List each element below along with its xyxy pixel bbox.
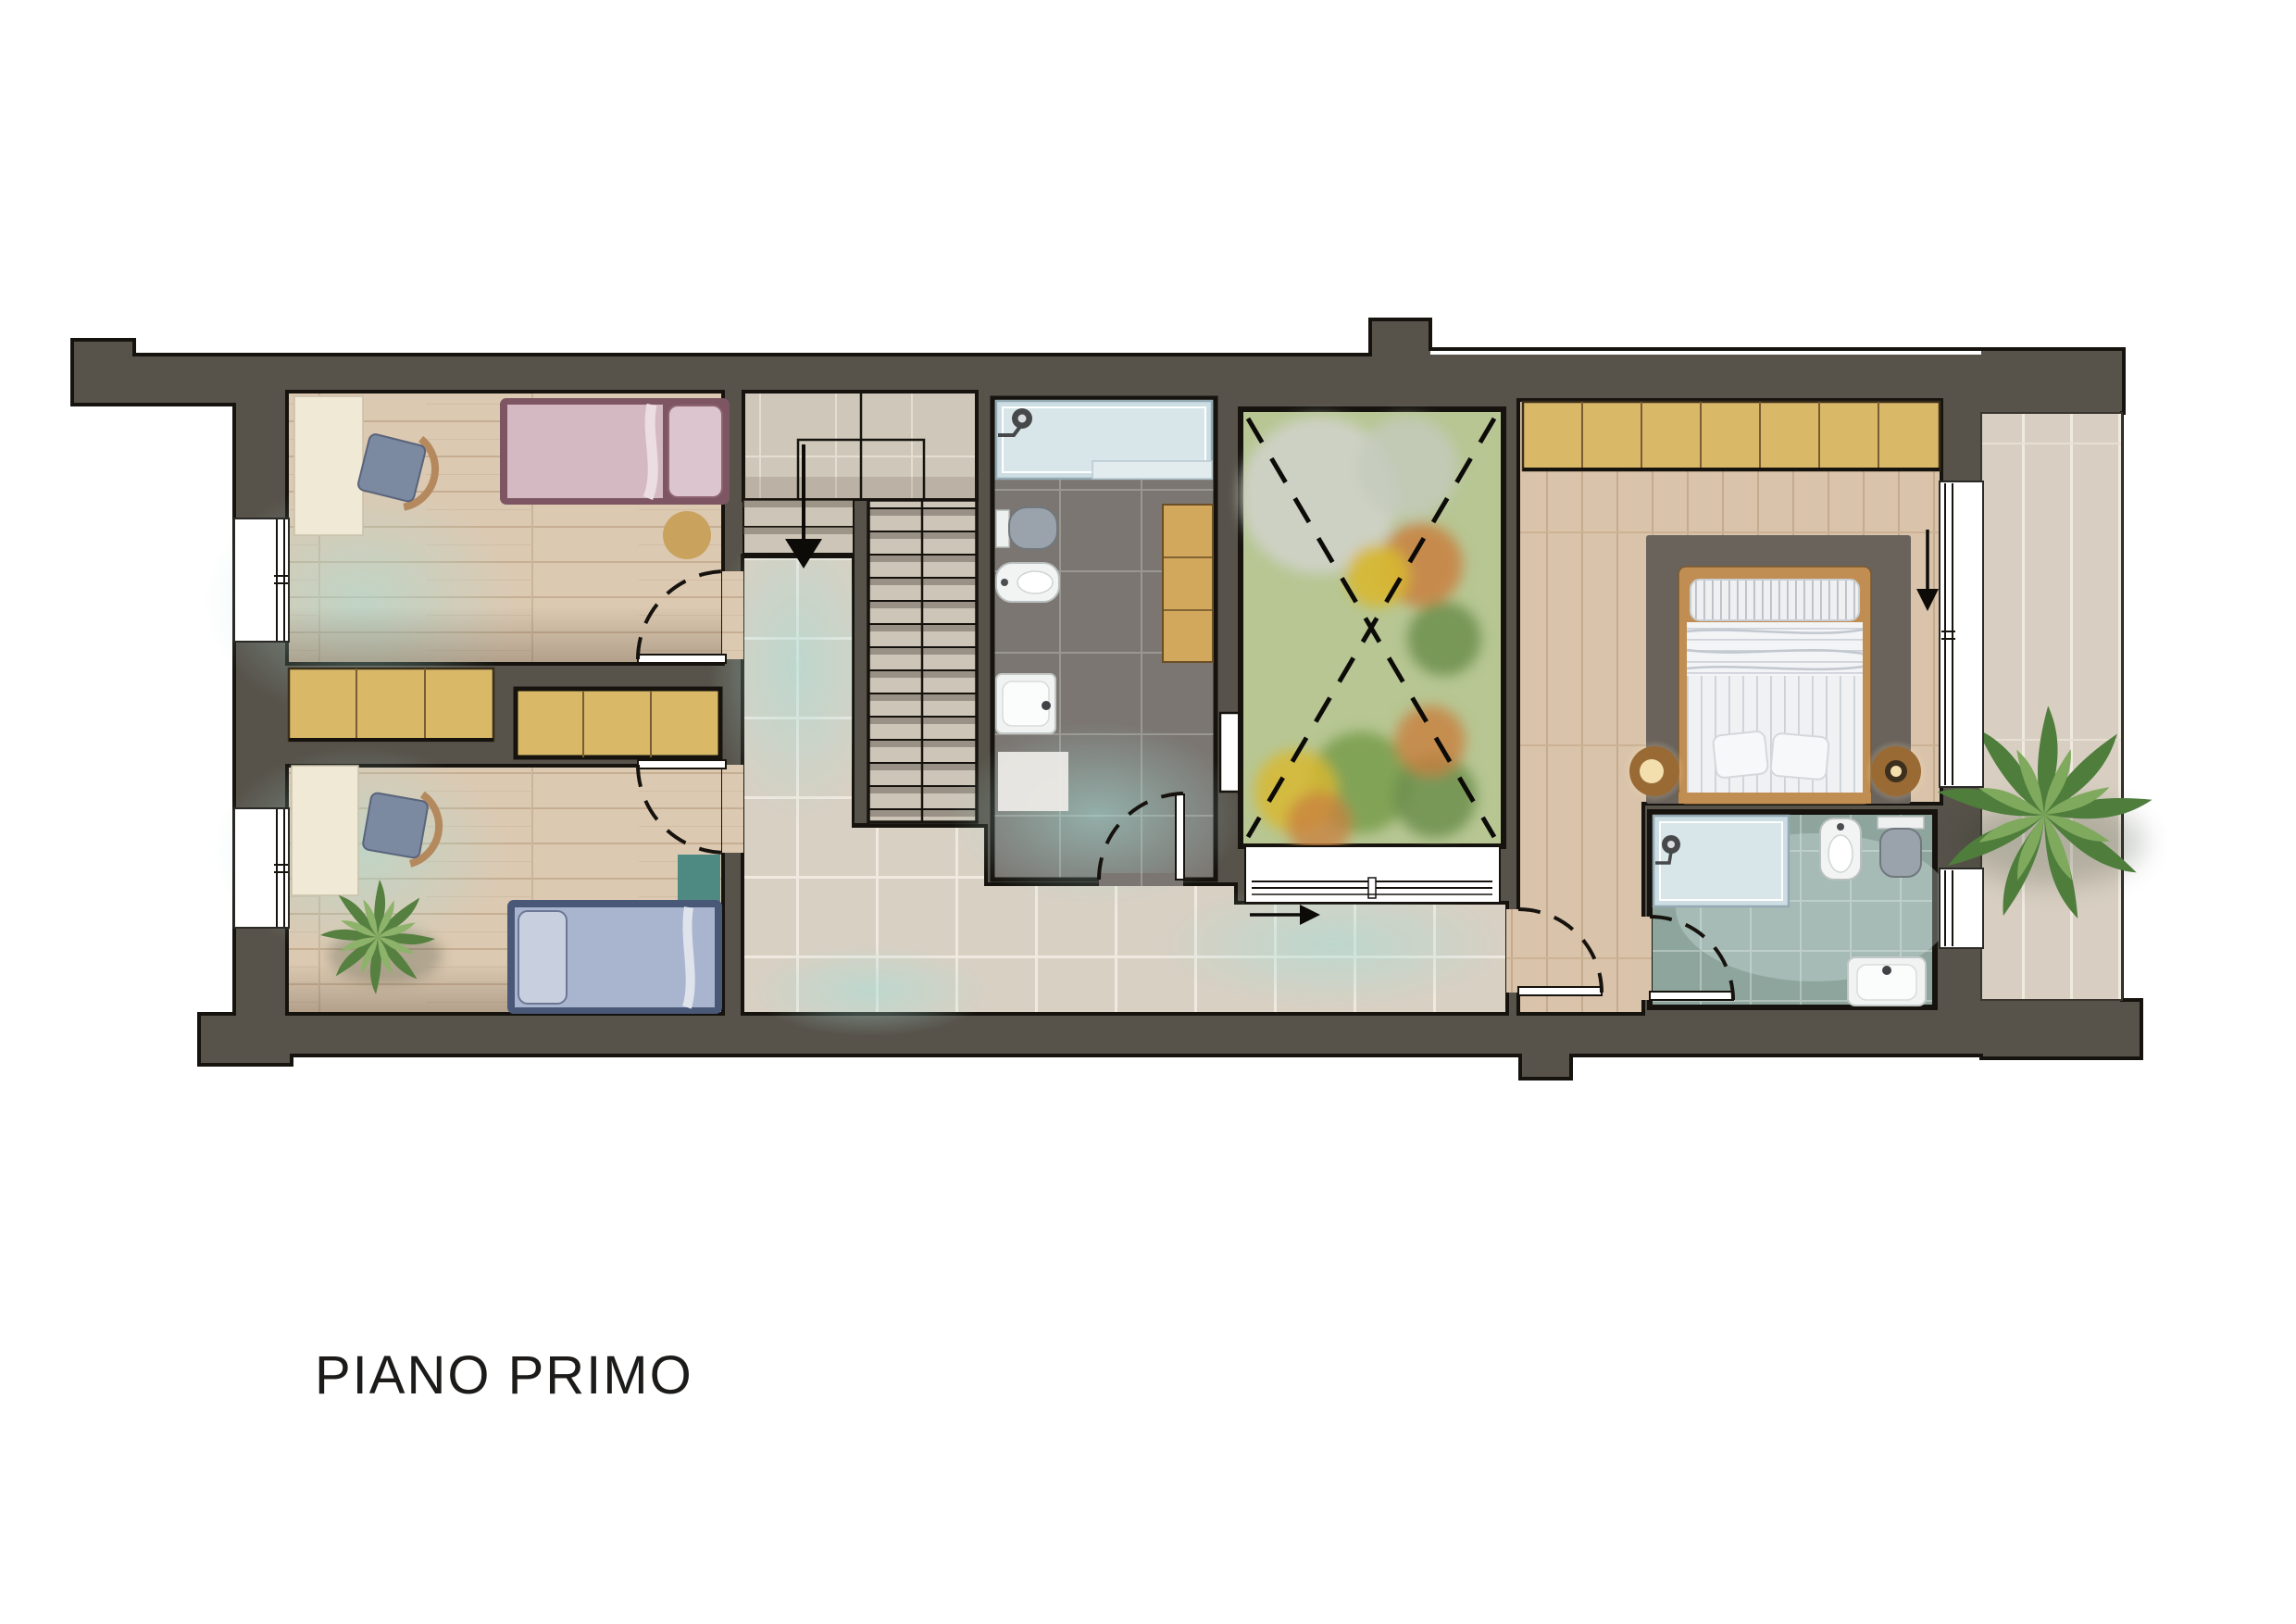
courtyard-window xyxy=(1245,846,1500,903)
bedroom2-door-leaf xyxy=(638,760,726,768)
bedroom2-teal-unit xyxy=(678,855,720,903)
courtyard xyxy=(1241,409,1504,903)
bathroom-shower xyxy=(996,401,1212,479)
bedroom2-desk xyxy=(292,766,358,895)
ensuite-toilet xyxy=(1878,817,1924,877)
bedroom1-door-leaf xyxy=(638,655,726,663)
master-bed-pillow xyxy=(1691,580,1859,620)
master-door-leaf xyxy=(1518,987,1602,995)
hallway-light-wash-3 xyxy=(750,944,991,1037)
master-lamp-right xyxy=(1865,740,1928,803)
stairs-divider-wall xyxy=(854,500,868,824)
bedroom2-single-bed xyxy=(507,900,722,1014)
ensuite-shower xyxy=(1653,816,1789,906)
master-lamp-left xyxy=(1623,740,1686,803)
bathroom-mat xyxy=(998,752,1068,811)
bedroom1-window xyxy=(234,518,289,642)
floor-plan-page: PIANO PRIMO xyxy=(0,0,2296,1624)
bed1-mattress xyxy=(507,405,663,498)
wall-top-left-notch xyxy=(72,340,134,405)
main-bathroom xyxy=(949,398,1250,907)
bedroom2-window xyxy=(234,808,289,928)
wall-bottom-left-block xyxy=(199,1014,292,1065)
bedroom1-single-bed xyxy=(500,398,730,505)
wall-bottom-center-step xyxy=(1520,1054,1571,1079)
ensuite-bathroom xyxy=(1650,812,1953,1007)
bed1-pillow xyxy=(668,406,722,497)
master-double-bed xyxy=(1678,567,1871,804)
ensuite-washbasin xyxy=(1848,957,1926,1006)
master-window xyxy=(1940,481,1983,787)
wall-top-left-pilaster xyxy=(134,355,234,405)
bedroom1-stool xyxy=(663,511,711,559)
wall-top-right xyxy=(1981,348,2125,413)
bathroom-bidet xyxy=(996,563,1059,602)
bathroom-washbasin xyxy=(996,674,1055,733)
floor-title: PIANO PRIMO xyxy=(315,1345,693,1405)
ensuite-door-leaf xyxy=(1650,992,1733,1000)
bed1-blanket-fold xyxy=(648,405,653,498)
master-wardrobe xyxy=(1523,402,1940,471)
bathroom-toilet xyxy=(996,507,1057,549)
terrace-floor xyxy=(1981,413,2122,1000)
bed2-pillow xyxy=(518,911,567,1004)
master-bed-cushion-2 xyxy=(1770,732,1829,780)
bedroom1-desk xyxy=(294,396,363,535)
bed2-blanket-fold xyxy=(687,907,691,1007)
wall-chimney xyxy=(1370,319,1430,356)
ensuite-bidet xyxy=(1820,818,1861,880)
ensuite-window xyxy=(1940,868,1983,948)
wall-bottom-right-block xyxy=(1981,1000,2141,1058)
bathroom-door-leaf xyxy=(1176,794,1184,880)
floor-plan-drawing: PIANO PRIMO xyxy=(0,0,2296,1624)
terrace xyxy=(1981,413,2122,1000)
master-bed-cushion-1 xyxy=(1713,731,1769,779)
bathroom-cabinet xyxy=(1163,505,1213,662)
bedroom1-wardrobe xyxy=(289,668,493,741)
bedroom2-wardrobe xyxy=(516,689,720,757)
